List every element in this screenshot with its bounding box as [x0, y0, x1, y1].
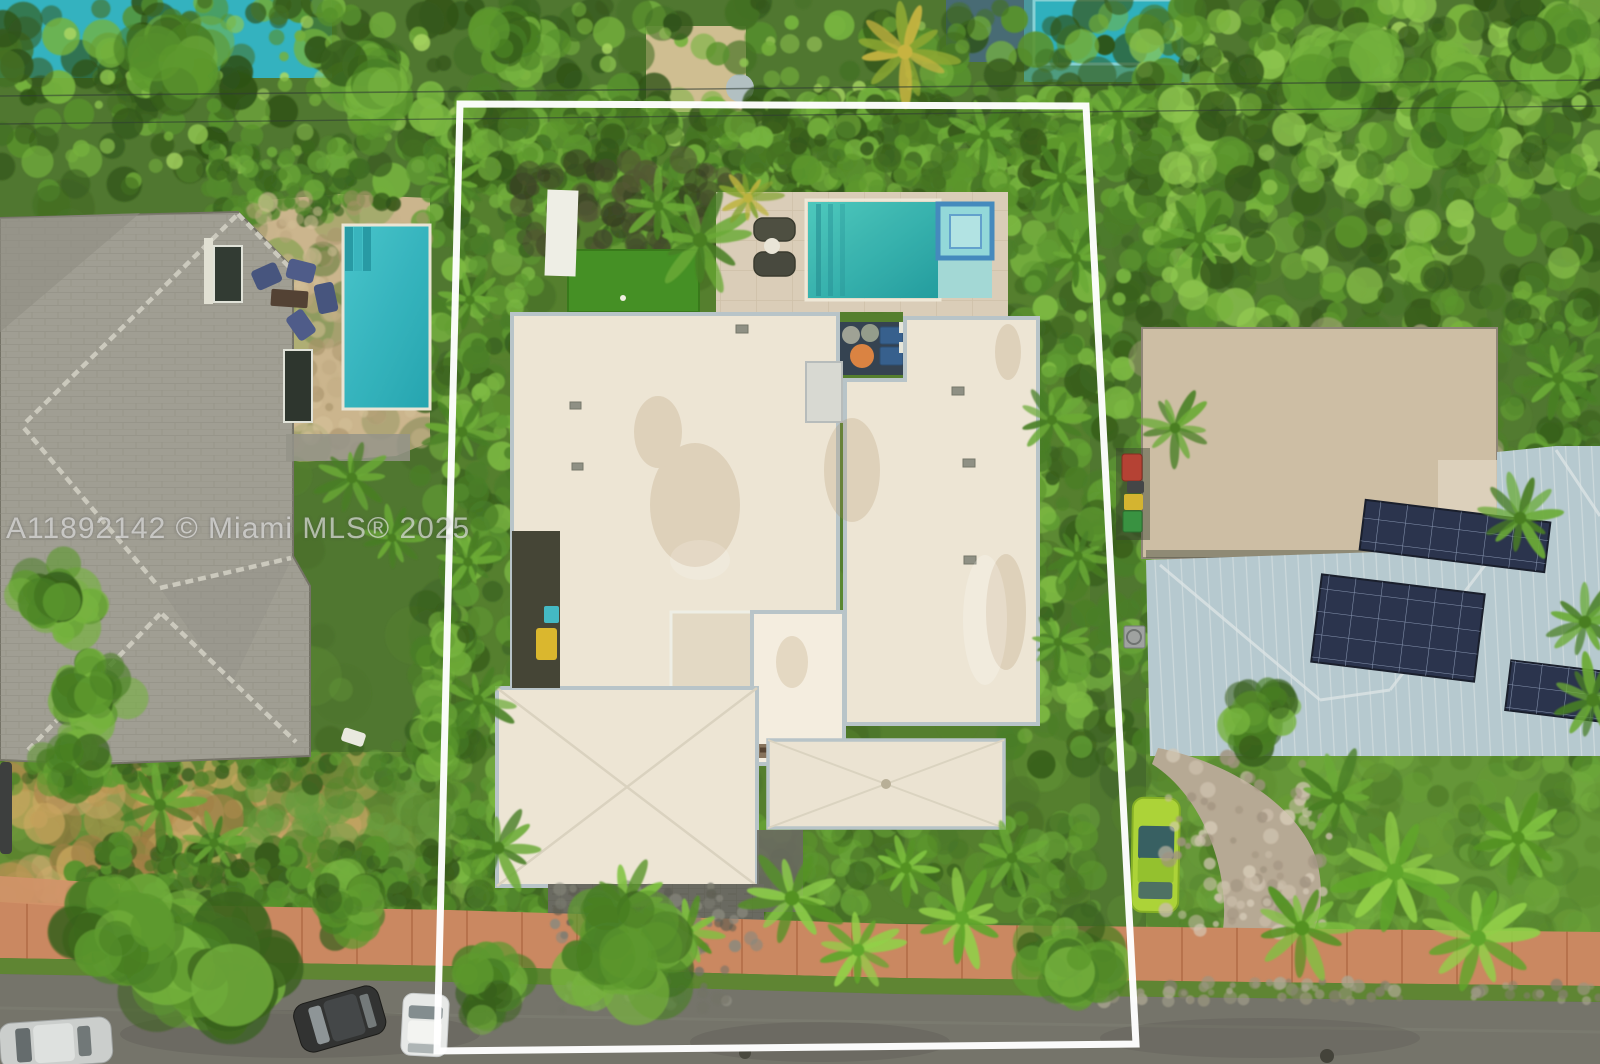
warm-tint-overlay [0, 0, 1600, 1064]
aerial-photo-canvas [0, 0, 1600, 1064]
real-estate-aerial-photo: A11892142 © Miami MLS® 2025 [0, 0, 1600, 1064]
